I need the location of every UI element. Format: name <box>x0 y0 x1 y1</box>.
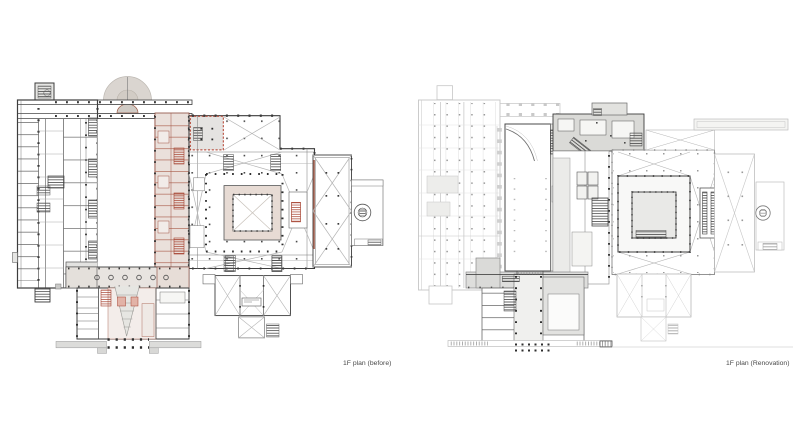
svg-text:1F plan (before): 1F plan (before) <box>343 360 391 367</box>
svg-text:1F plan (Renovation): 1F plan (Renovation) <box>726 360 789 367</box>
